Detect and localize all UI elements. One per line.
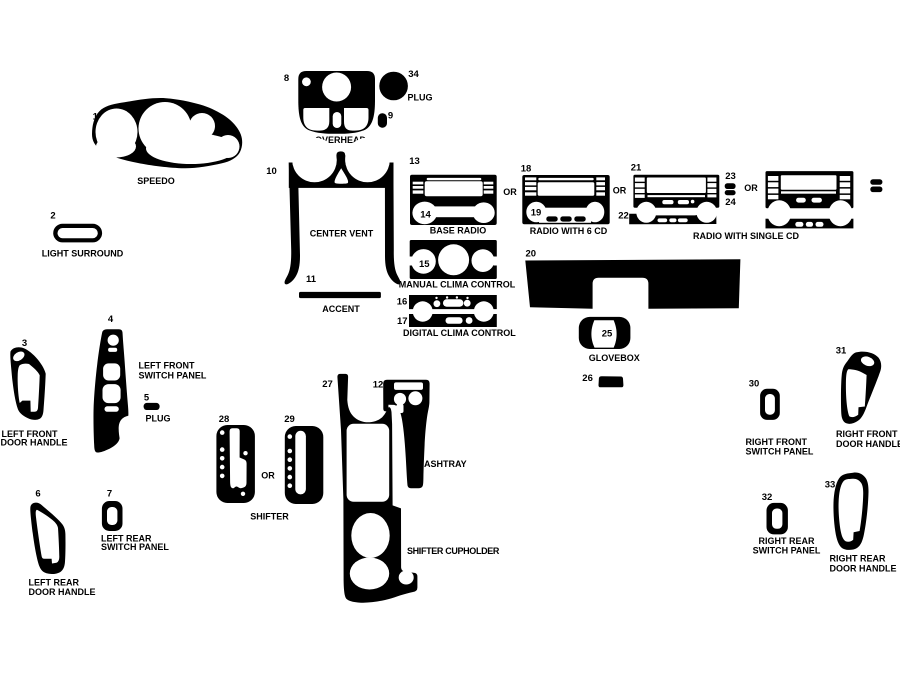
svg-text:LEFT FRONT: LEFT FRONT — [139, 361, 195, 371]
svg-text:13: 13 — [409, 156, 420, 167]
svg-text:31: 31 — [836, 346, 847, 357]
svg-text:6: 6 — [35, 489, 40, 500]
svg-text:10: 10 — [266, 166, 277, 177]
svg-text:18: 18 — [521, 164, 532, 175]
svg-text:29: 29 — [284, 414, 295, 425]
svg-text:SWITCH PANEL: SWITCH PANEL — [753, 546, 821, 556]
svg-text:30: 30 — [749, 379, 760, 390]
svg-text:DIGITAL CLIMA CONTROL: DIGITAL CLIMA CONTROL — [403, 328, 516, 338]
svg-text:22: 22 — [618, 211, 629, 222]
svg-text:19: 19 — [531, 208, 542, 219]
svg-text:25: 25 — [602, 329, 613, 340]
svg-text:GLOVEBOX: GLOVEBOX — [589, 353, 640, 363]
svg-text:SWITCH PANEL: SWITCH PANEL — [139, 371, 207, 381]
svg-text:SHIFTER: SHIFTER — [250, 512, 289, 522]
svg-text:DOOR HANDLE: DOOR HANDLE — [830, 564, 897, 574]
svg-text:21: 21 — [631, 163, 642, 174]
svg-text:MANUAL CLIMA CONTROL: MANUAL CLIMA CONTROL — [399, 280, 516, 290]
svg-text:ACCENT: ACCENT — [322, 304, 360, 314]
svg-text:4: 4 — [108, 314, 114, 325]
svg-text:LIGHT SURROUND: LIGHT SURROUND — [42, 249, 124, 259]
svg-text:RADIO WITH SINGLE CD: RADIO WITH SINGLE CD — [693, 231, 799, 241]
svg-text:SHIFTER CUPHOLDER: SHIFTER CUPHOLDER — [407, 546, 500, 556]
svg-text:33: 33 — [825, 480, 836, 491]
svg-text:1: 1 — [93, 112, 99, 123]
svg-text:RIGHT FRONT: RIGHT FRONT — [836, 429, 898, 439]
svg-text:OR: OR — [503, 187, 517, 197]
svg-text:34: 34 — [408, 69, 419, 80]
svg-text:DOOR HANDLE: DOOR HANDLE — [1, 438, 68, 448]
svg-text:BASE RADIO: BASE RADIO — [430, 226, 487, 236]
svg-text:SWITCH PANEL: SWITCH PANEL — [746, 447, 814, 457]
svg-text:RIGHT FRONT: RIGHT FRONT — [746, 437, 808, 447]
svg-text:DOOR HANDLE: DOOR HANDLE — [836, 439, 900, 449]
svg-text:9: 9 — [388, 111, 393, 122]
svg-text:DOOR HANDLE: DOOR HANDLE — [29, 587, 96, 597]
svg-text:PLUG: PLUG — [408, 93, 433, 103]
svg-text:14: 14 — [420, 210, 431, 221]
svg-text:CENTER VENT: CENTER VENT — [310, 229, 374, 239]
svg-text:12: 12 — [373, 380, 384, 391]
svg-text:ASHTRAY: ASHTRAY — [424, 459, 467, 469]
svg-text:OR: OR — [744, 183, 758, 193]
svg-text:RIGHT REAR: RIGHT REAR — [830, 554, 887, 564]
svg-text:OR: OR — [613, 186, 627, 196]
svg-text:28: 28 — [219, 414, 230, 425]
svg-text:15: 15 — [419, 259, 430, 270]
svg-text:5: 5 — [144, 393, 150, 404]
svg-text:23: 23 — [725, 171, 736, 182]
svg-text:RADIO WITH 6 CD: RADIO WITH 6 CD — [530, 226, 608, 236]
svg-text:PLUG: PLUG — [146, 414, 171, 424]
svg-text:2: 2 — [50, 211, 55, 222]
svg-text:20: 20 — [526, 249, 537, 260]
svg-text:OR: OR — [261, 471, 275, 481]
svg-text:7: 7 — [107, 489, 112, 500]
svg-text:27: 27 — [322, 379, 333, 390]
svg-text:SWITCH PANEL: SWITCH PANEL — [101, 542, 169, 552]
svg-text:24: 24 — [725, 197, 736, 208]
svg-text:3: 3 — [22, 338, 27, 349]
svg-text:32: 32 — [762, 492, 773, 503]
svg-text:LEFT REAR: LEFT REAR — [29, 578, 80, 588]
svg-text:11: 11 — [306, 274, 317, 285]
svg-text:SPEEDO: SPEEDO — [137, 176, 175, 186]
svg-text:RIGHT REAR: RIGHT REAR — [759, 536, 816, 546]
svg-text:17: 17 — [397, 316, 408, 327]
svg-text:26: 26 — [582, 373, 593, 384]
svg-text:8: 8 — [284, 73, 289, 84]
svg-text:16: 16 — [397, 296, 408, 307]
